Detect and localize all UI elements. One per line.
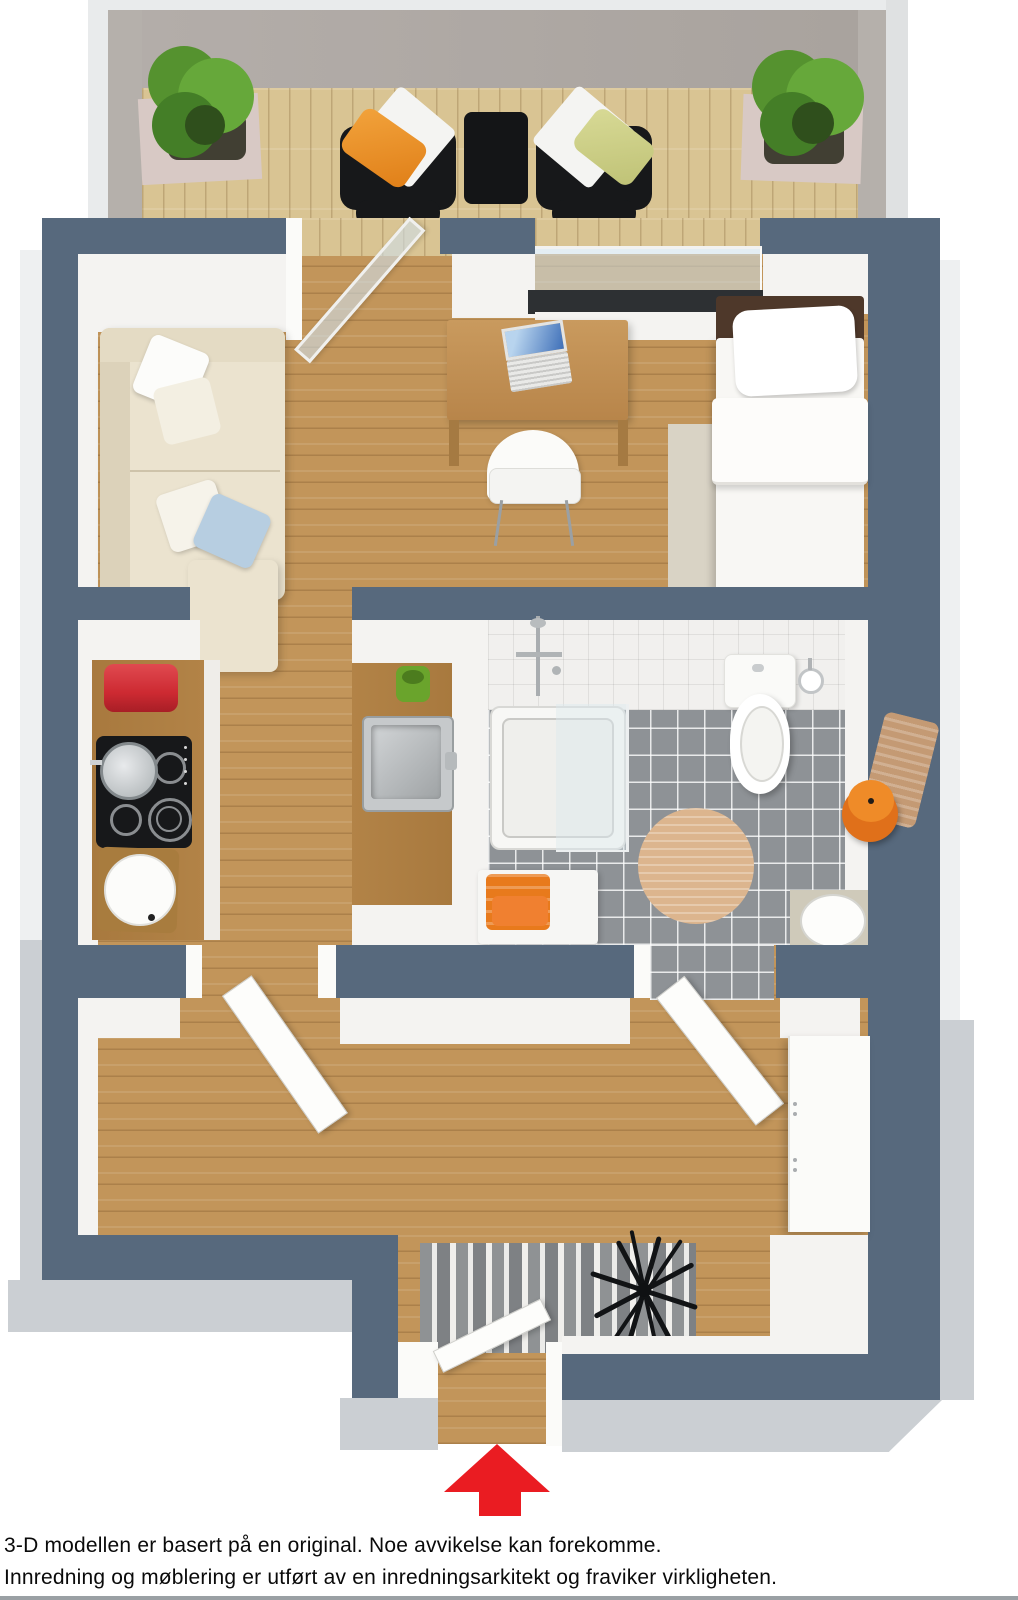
hall-wall-face	[84, 998, 180, 1038]
cooktop-control	[184, 746, 187, 749]
window-glass	[535, 246, 762, 295]
kitchen-peninsula-front	[352, 905, 460, 945]
hall-north-wall-right	[776, 945, 868, 998]
wall-face-north-left	[95, 254, 298, 332]
desk-chair-base	[489, 468, 581, 504]
divider-wall-stub	[78, 587, 190, 620]
divider-wall-main	[352, 587, 940, 620]
left-outer-wall-gray	[20, 940, 42, 1285]
kitchen-stool-knob	[148, 914, 155, 921]
toilet-paper-bracket	[808, 658, 812, 670]
entrance-left-outer-block	[340, 1398, 438, 1450]
balcony-outer-wall-left	[88, 0, 110, 220]
sofa-cushion-line	[130, 470, 280, 472]
bed-duvet	[712, 398, 868, 485]
bathroom-round-rug	[638, 808, 754, 924]
balcony-wall-left	[108, 10, 142, 218]
toilet-bowl-inner	[740, 706, 784, 782]
cup-green-inside	[402, 670, 424, 684]
wardrobe-handle	[793, 1112, 797, 1116]
caption-line-2: Innredning og møblering er utført av en …	[4, 1566, 777, 1590]
wardrobe-handle	[793, 1158, 797, 1162]
balcony-outer-wall-right	[886, 0, 908, 220]
cooktop-control	[184, 770, 187, 773]
wardrobe	[788, 1036, 870, 1232]
shower-head	[530, 618, 546, 628]
wardrobe-handle	[793, 1102, 797, 1106]
bottom-edge-line	[0, 1596, 1018, 1600]
entrance-arrow-head	[444, 1444, 550, 1492]
cooking-pot	[100, 742, 158, 800]
towel-orange-fold	[492, 896, 548, 926]
left-outer-wall	[20, 250, 42, 940]
toilet-flush-button	[752, 664, 764, 672]
balcony-side-table	[464, 112, 528, 204]
kitchen-stool-seat	[104, 854, 176, 926]
entrance-arrow-shaft	[479, 1490, 521, 1516]
desk-leg	[618, 420, 628, 466]
shower-knob	[552, 666, 561, 675]
wall-face-peninsula	[352, 620, 452, 663]
caption-line-1: 3-D modellen er basert på en original. N…	[4, 1534, 662, 1558]
bed-pillow	[732, 305, 858, 397]
kitchen-cabinet-edge	[204, 660, 220, 940]
north-wall-left	[78, 218, 300, 254]
entrance-south-wall	[562, 1354, 912, 1400]
wardrobe-handle	[793, 1168, 797, 1172]
deck-above-window	[535, 218, 763, 248]
plant-soil-right	[792, 102, 834, 144]
hall-wall-face	[340, 998, 630, 1044]
wall-face-pier	[452, 254, 535, 318]
door-jamb	[318, 945, 336, 998]
balcony-door-opening	[298, 218, 452, 256]
entrance-threshold	[436, 1400, 546, 1444]
wall-face-kitchen-left	[85, 620, 200, 663]
plant-soil-left	[185, 105, 225, 145]
sink-faucet	[445, 752, 457, 770]
entrance-step-wall	[352, 1235, 398, 1400]
right-outer-wall-gray	[940, 1020, 974, 1400]
entrance-south-wall-face	[562, 1336, 868, 1356]
cooktop-control	[184, 758, 187, 761]
sofa-chaise	[188, 560, 278, 672]
canister-red	[104, 664, 178, 712]
laptop	[501, 320, 573, 395]
door-jamb	[634, 945, 650, 998]
kitchen-sink-basin	[371, 725, 441, 799]
cooktop-control	[184, 782, 187, 785]
hall-wall-face	[780, 998, 860, 1038]
desk-leg	[449, 420, 459, 466]
door-jamb	[286, 218, 302, 340]
floor-plan-3d: 3-D modellen er basert på en original. N…	[0, 0, 1018, 1600]
pot-handle	[90, 760, 102, 765]
vanity-basin	[800, 894, 866, 948]
shower-mixer-bar	[516, 652, 562, 657]
hall-south-wall-outer	[8, 1280, 362, 1332]
stool-orange-knob	[868, 798, 874, 804]
sofa-backrest	[100, 328, 130, 600]
hall-north-wall-left	[78, 945, 186, 998]
shower-glass	[556, 704, 629, 852]
left-wall	[42, 218, 78, 1280]
burner-inner-ring	[156, 806, 182, 832]
burner	[110, 804, 142, 836]
north-wall-pier	[440, 218, 535, 254]
hall-north-wall-mid	[336, 945, 634, 998]
right-outer-wall	[940, 260, 960, 1020]
coat-rack-hub	[637, 1283, 651, 1297]
door-jamb	[186, 945, 202, 998]
hall-south-wall	[42, 1235, 362, 1280]
entrance-south-wall-outer	[562, 1400, 942, 1452]
toilet-paper-holder	[798, 668, 824, 694]
burner	[154, 752, 186, 784]
